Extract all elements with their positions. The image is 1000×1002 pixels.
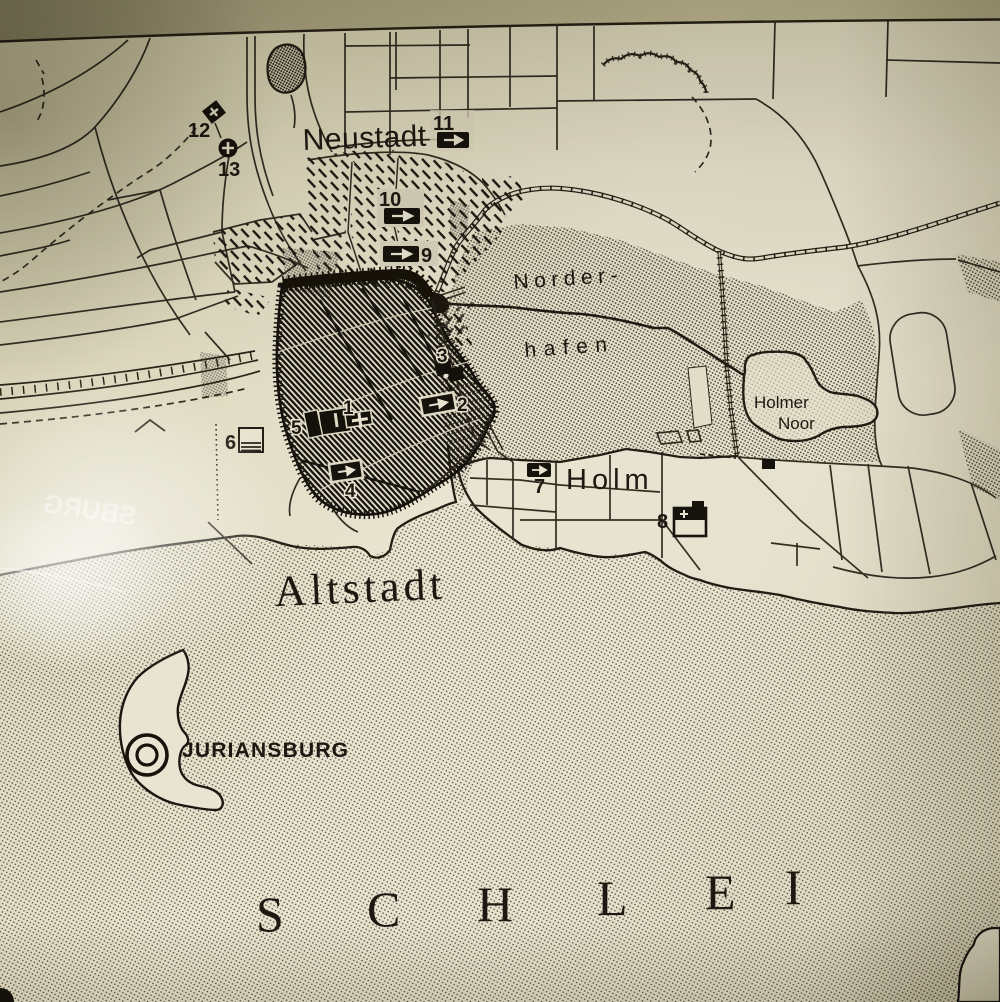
svg-text:1: 1	[343, 398, 354, 419]
svg-text:I: I	[785, 859, 802, 915]
svg-text:4: 4	[345, 481, 356, 502]
svg-text:7: 7	[534, 476, 545, 498]
svg-text:Noor: Noor	[778, 414, 815, 433]
svg-text:L: L	[597, 870, 628, 926]
svg-text:Holmer: Holmer	[754, 393, 809, 412]
svg-text:8: 8	[657, 511, 668, 533]
svg-text:2: 2	[457, 395, 468, 416]
svg-text:Holm: Holm	[566, 464, 654, 496]
svg-text:E: E	[705, 864, 736, 920]
svg-text:5: 5	[291, 418, 302, 439]
svg-text:JURIANSBURG: JURIANSBURG	[182, 739, 349, 762]
svg-text:Altstadt: Altstadt	[273, 560, 446, 616]
